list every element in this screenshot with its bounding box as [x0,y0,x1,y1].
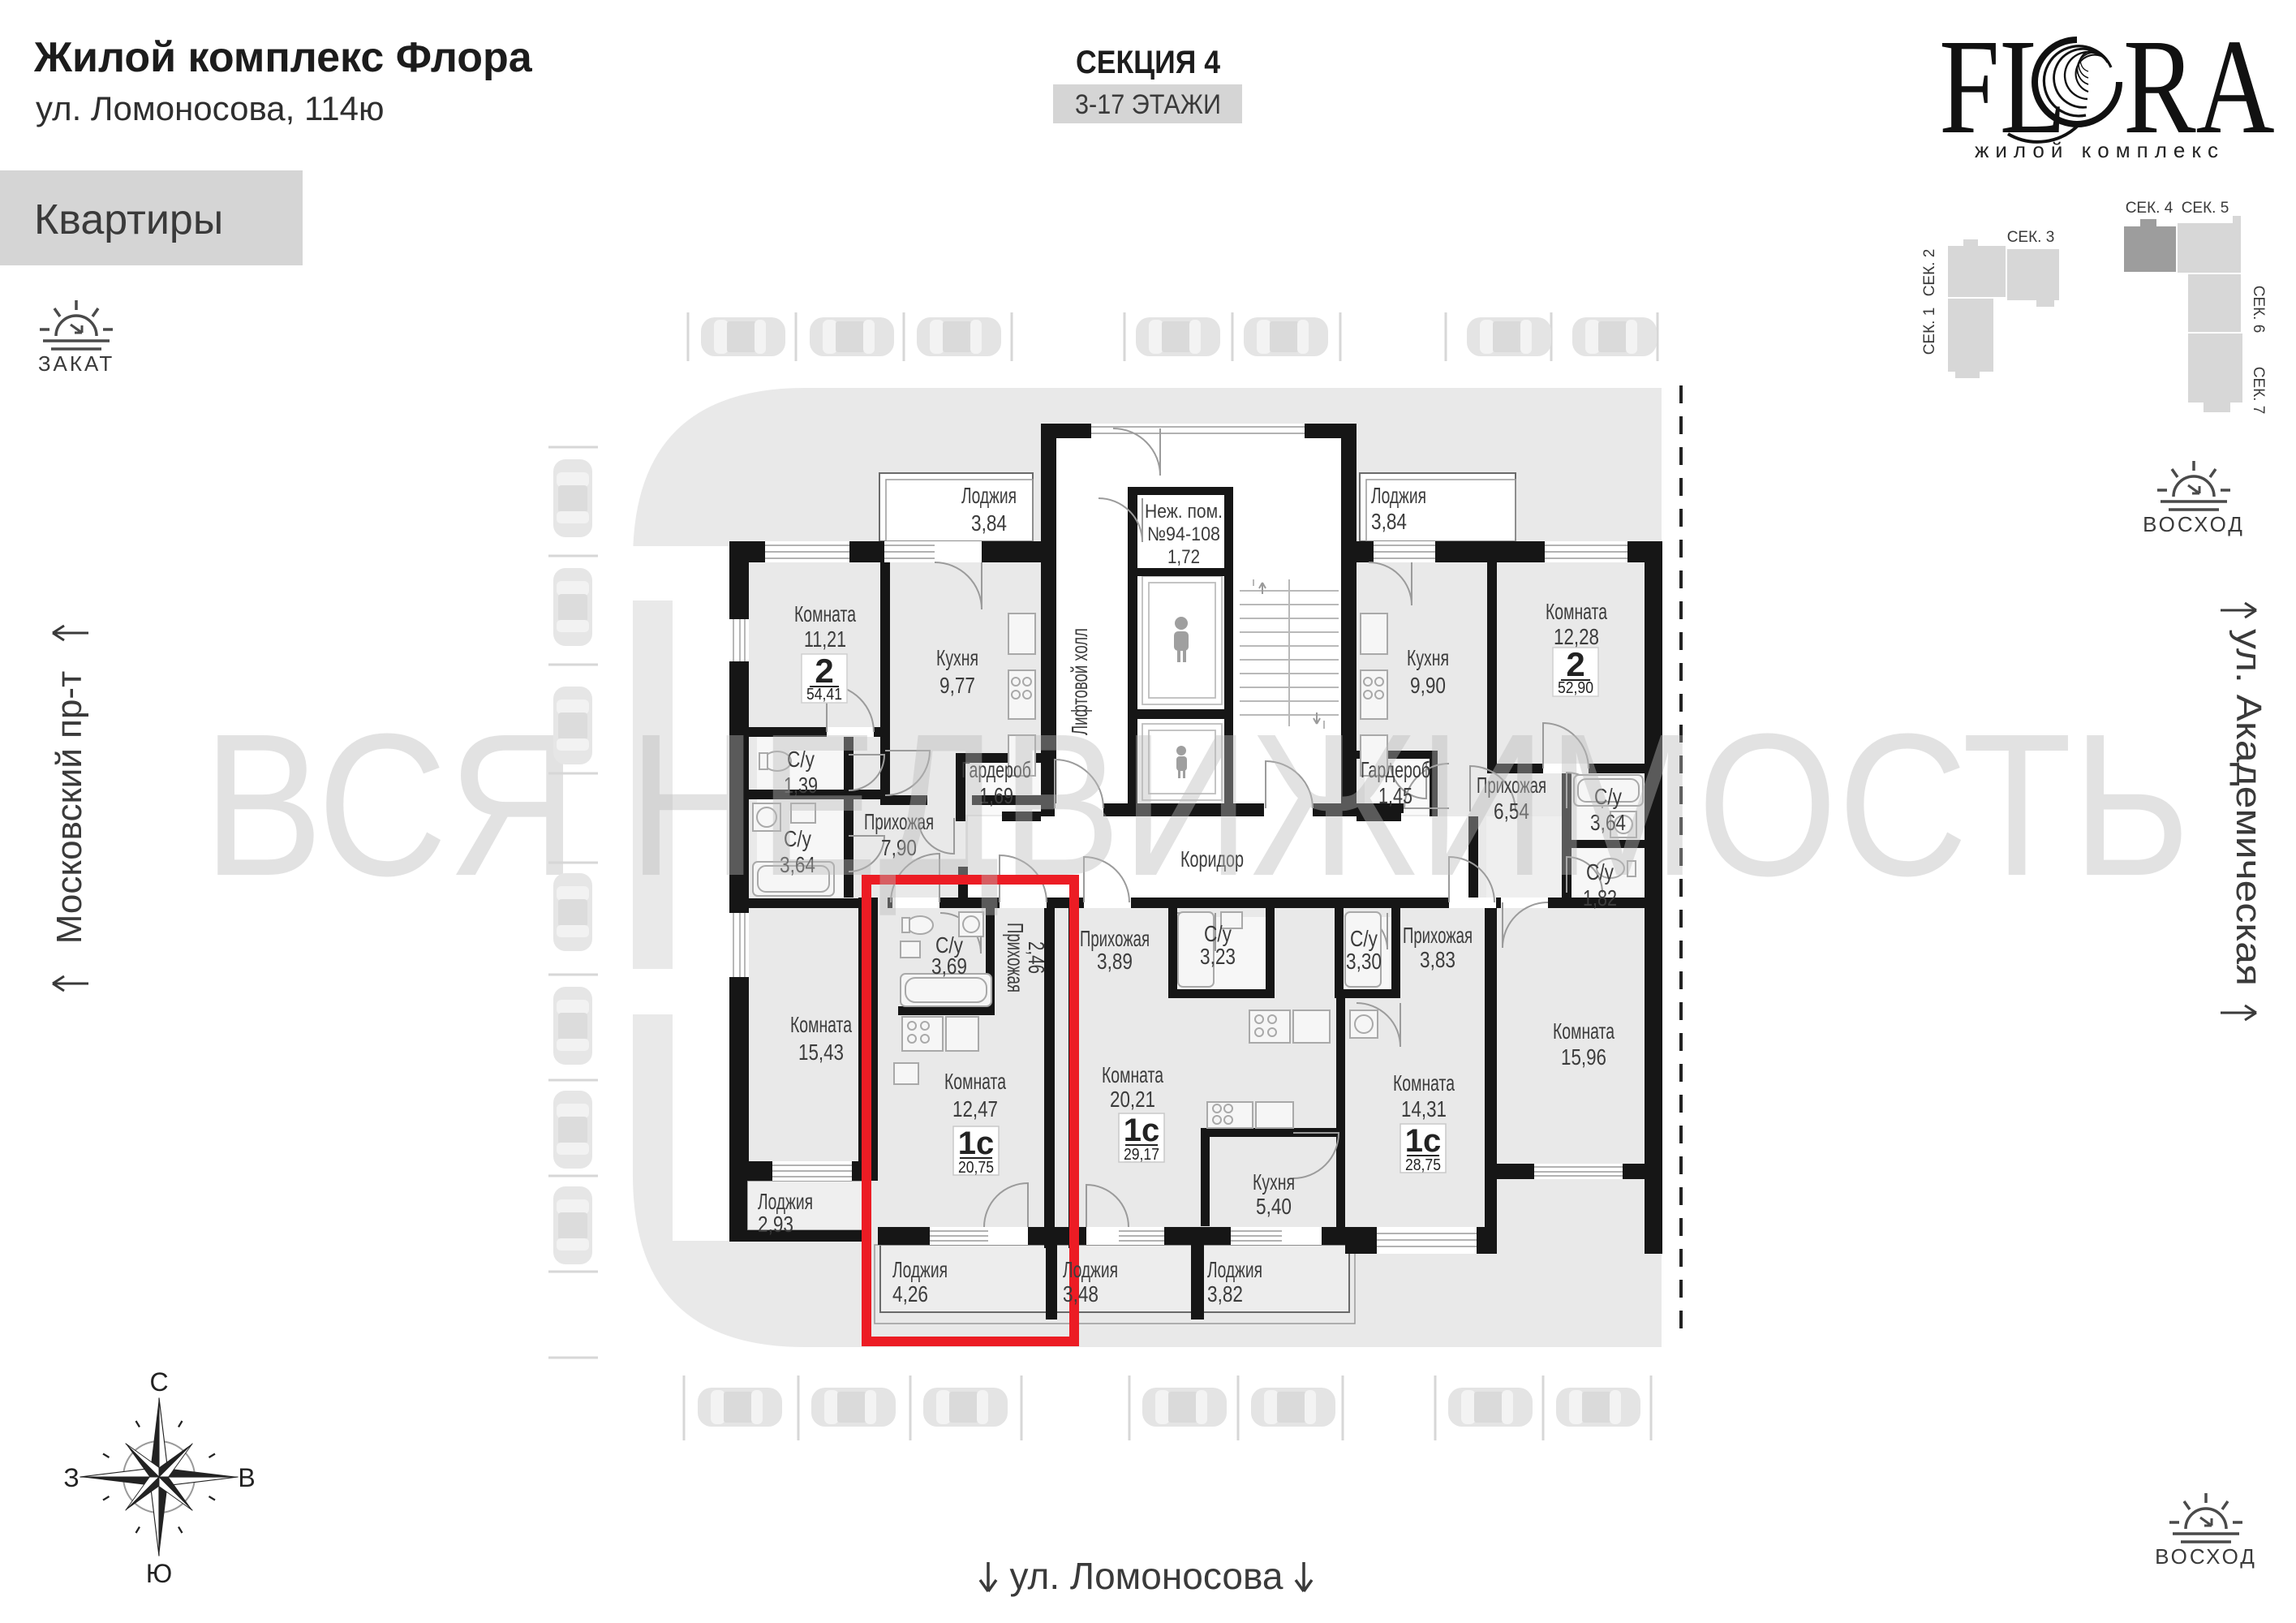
svg-text:Кухня: Кухня [1407,645,1449,670]
svg-text:С: С [149,1367,168,1397]
svg-text:Лоджия: Лоджия [1207,1257,1262,1282]
svg-text:Квартиры: Квартиры [34,196,223,243]
svg-text:Лоджия: Лоджия [758,1189,813,1214]
svg-text:11,21: 11,21 [804,626,846,652]
svg-text:Лоджия: Лоджия [1371,483,1426,508]
svg-text:20,21: 20,21 [1110,1087,1155,1112]
svg-text:3,89: 3,89 [1097,949,1133,974]
svg-text:1,72: 1,72 [1167,546,1200,568]
svg-text:3,69: 3,69 [931,954,967,979]
svg-text:28,75: 28,75 [1405,1156,1441,1174]
svg-text:20,75: 20,75 [958,1159,994,1177]
svg-text:14,31: 14,31 [1401,1096,1447,1121]
svg-text:1с: 1с [958,1126,995,1161]
svg-text:СЕКЦИЯ 4: СЕКЦИЯ 4 [1076,45,1221,80]
svg-text:СЕК. 7: СЕК. 7 [2250,367,2267,415]
svg-text:2: 2 [1566,645,1584,683]
svg-text:2: 2 [815,652,833,690]
svg-text:Комната: Комната [1393,1070,1455,1096]
svg-text:жилой комплекс: жилой комплекс [1975,138,2225,162]
svg-text:Кухня: Кухня [936,645,978,670]
svg-text:СЕК. 2: СЕК. 2 [1921,249,1938,297]
svg-text:В: В [238,1463,255,1492]
svg-text:Комната: Комната [1546,599,1607,624]
svg-text:Лоджия: Лоджия [1063,1257,1118,1282]
svg-text:3,84: 3,84 [1371,509,1407,534]
svg-text:Комната: Комната [1102,1062,1163,1087]
svg-text:С/у: С/у [1350,926,1378,951]
svg-text:29,17: 29,17 [1124,1146,1159,1164]
svg-text:СЕК. 6: СЕК. 6 [2250,286,2267,334]
svg-text:Комната: Комната [790,1012,852,1037]
svg-text:Прихожая: Прихожая [1080,926,1150,951]
svg-text:Комната: Комната [794,601,856,626]
svg-text:Ю: Ю [146,1559,172,1588]
svg-text:ул. Ломоносова, 114ю: ул. Ломоносова, 114ю [36,89,384,127]
svg-text:Московский пр-т: Московский пр-т [49,671,89,944]
svg-text:СЕК. 3: СЕК. 3 [2007,229,2055,246]
svg-text:ВОСХОД: ВОСХОД [2143,512,2245,536]
svg-text:1с: 1с [1405,1123,1442,1159]
svg-text:15,43: 15,43 [798,1040,844,1065]
svg-text:СЕК. 1: СЕК. 1 [1921,308,1938,355]
svg-text:12,47: 12,47 [952,1096,998,1121]
svg-text:Комната: Комната [1553,1018,1615,1044]
svg-text:3,30: 3,30 [1346,949,1382,974]
svg-text:ВОСХОД: ВОСХОД [2155,1544,2257,1569]
svg-text:ул. Ломоносова: ул. Ломоносова [1010,1555,1283,1597]
svg-text:З: З [63,1463,79,1492]
svg-text:Прихожая: Прихожая [1403,923,1473,948]
svg-text:СЕК. 4: СЕК. 4 [2126,200,2173,217]
svg-text:Кухня: Кухня [1253,1169,1295,1195]
svg-text:4,26: 4,26 [892,1281,928,1307]
svg-text:2,46: 2,46 [1024,941,1049,974]
svg-text:3,48: 3,48 [1063,1281,1099,1307]
svg-text:3-17 ЭТАЖИ: 3-17 ЭТАЖИ [1075,89,1221,120]
svg-text:3,83: 3,83 [1420,947,1455,972]
svg-text:СЕК. 5: СЕК. 5 [2182,200,2229,217]
svg-text:3,82: 3,82 [1207,1281,1243,1307]
svg-text:Лоджия: Лоджия [892,1257,948,1282]
svg-text:15,96: 15,96 [1561,1044,1606,1070]
svg-text:ЗАКАТ: ЗАКАТ [38,351,114,376]
svg-text:3,23: 3,23 [1200,944,1236,969]
svg-text:5,40: 5,40 [1256,1194,1292,1219]
svg-text:ВСЯ НЕДВИЖИМОСТЬ: ВСЯ НЕДВИЖИМОСТЬ [203,691,2191,918]
svg-text:ул. Академическая: ул. Академическая [2229,629,2268,986]
svg-text:Лоджия: Лоджия [961,483,1017,508]
svg-text:2,93: 2,93 [758,1212,793,1237]
svg-text:Неж. пом.: Неж. пом. [1145,501,1223,523]
svg-text:Комната: Комната [944,1069,1006,1094]
svg-text:3,84: 3,84 [971,510,1007,536]
svg-text:1с: 1с [1124,1113,1160,1148]
svg-text:Жилой комплекс Флора: Жилой комплекс Флора [33,34,533,81]
svg-text:№94-108: №94-108 [1147,523,1220,545]
svg-text:С/у: С/у [1204,921,1232,946]
